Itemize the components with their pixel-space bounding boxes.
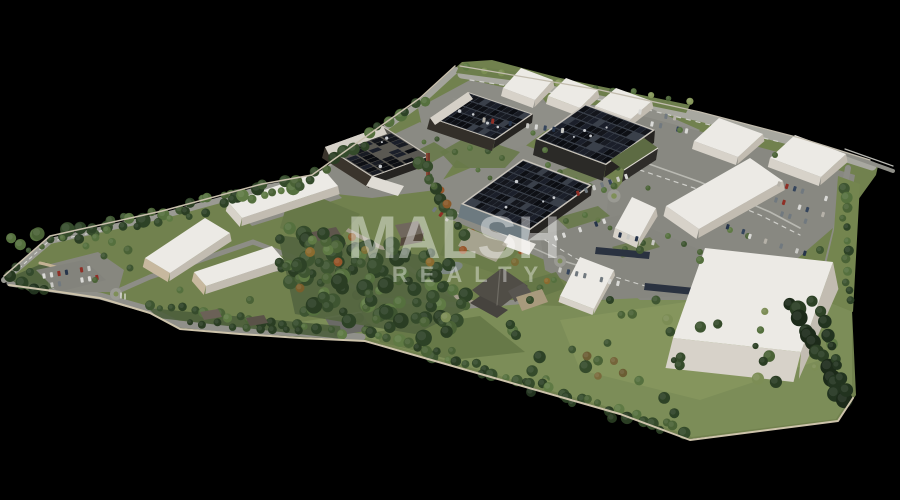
svg-text:REALTY: REALTY [392,262,550,287]
svg-text:MALSH: MALSH [347,204,560,271]
